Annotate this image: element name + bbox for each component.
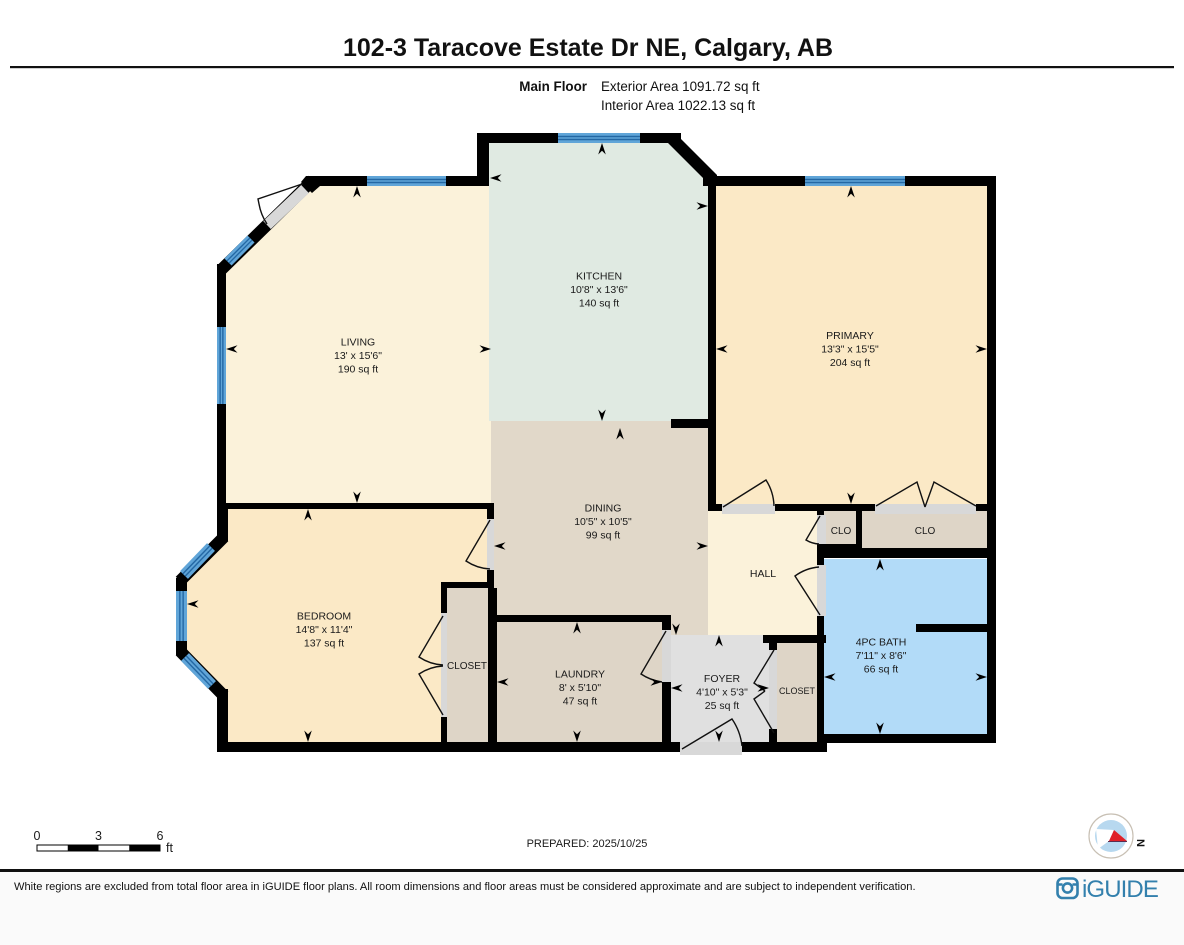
svg-text:204 sq ft: 204 sq ft: [830, 357, 870, 369]
svg-text:LAUNDRY: LAUNDRY: [555, 669, 605, 681]
svg-text:CLOSET: CLOSET: [779, 686, 816, 696]
svg-text:CLO: CLO: [831, 526, 852, 537]
svg-text:White regions are excluded fro: White regions are excluded from total fl…: [14, 881, 916, 893]
svg-text:47 sq ft: 47 sq ft: [563, 696, 598, 708]
svg-text:4PC BATH: 4PC BATH: [856, 637, 907, 649]
svg-text:Interior Area 1022.13 sq ft: Interior Area 1022.13 sq ft: [601, 98, 755, 113]
svg-text:BEDROOM: BEDROOM: [297, 611, 351, 623]
svg-text:HALL: HALL: [750, 568, 776, 580]
svg-text:ft: ft: [166, 841, 173, 855]
svg-text:CLO: CLO: [915, 526, 936, 537]
svg-text:10'5" x 10'5": 10'5" x 10'5": [574, 516, 632, 528]
svg-text:3: 3: [95, 829, 102, 843]
svg-text:LIVING: LIVING: [341, 337, 375, 349]
svg-text:6: 6: [157, 829, 164, 843]
svg-text:102-3 Taracove Estate Dr NE, C: 102-3 Taracove Estate Dr NE, Calgary, AB: [343, 34, 833, 62]
svg-text:10'8" x 13'6": 10'8" x 13'6": [570, 284, 628, 296]
svg-text:13' x 15'6": 13' x 15'6": [334, 350, 382, 362]
svg-text:190 sq ft: 190 sq ft: [338, 364, 378, 376]
svg-text:PRIMARY: PRIMARY: [826, 330, 874, 342]
svg-text:137 sq ft: 137 sq ft: [304, 638, 344, 650]
svg-text:7'11" x 8'6": 7'11" x 8'6": [856, 650, 907, 662]
svg-text:FOYER: FOYER: [704, 673, 741, 685]
svg-text:13'3" x 15'5": 13'3" x 15'5": [821, 344, 879, 356]
svg-text:N: N: [1134, 839, 1146, 847]
svg-text:KITCHEN: KITCHEN: [576, 271, 622, 283]
svg-text:Main Floor: Main Floor: [519, 79, 587, 94]
svg-text:4'10" x 5'3": 4'10" x 5'3": [696, 687, 748, 699]
svg-text:DINING: DINING: [585, 503, 622, 515]
svg-text:Exterior Area 1091.72 sq ft: Exterior Area 1091.72 sq ft: [601, 79, 760, 94]
svg-text:8' x 5'10": 8' x 5'10": [559, 682, 601, 694]
svg-text:PREPARED: 2025/10/25: PREPARED: 2025/10/25: [527, 838, 648, 850]
svg-text:0: 0: [34, 829, 41, 843]
svg-text:25 sq ft: 25 sq ft: [705, 700, 740, 712]
svg-text:iGUIDE: iGUIDE: [1082, 876, 1158, 903]
svg-text:99 sq ft: 99 sq ft: [586, 530, 621, 542]
svg-text:140 sq ft: 140 sq ft: [579, 298, 619, 310]
svg-text:14'8" x 11'4": 14'8" x 11'4": [296, 624, 353, 636]
svg-text:CLOSET: CLOSET: [447, 661, 487, 672]
svg-text:66 sq ft: 66 sq ft: [864, 664, 899, 676]
